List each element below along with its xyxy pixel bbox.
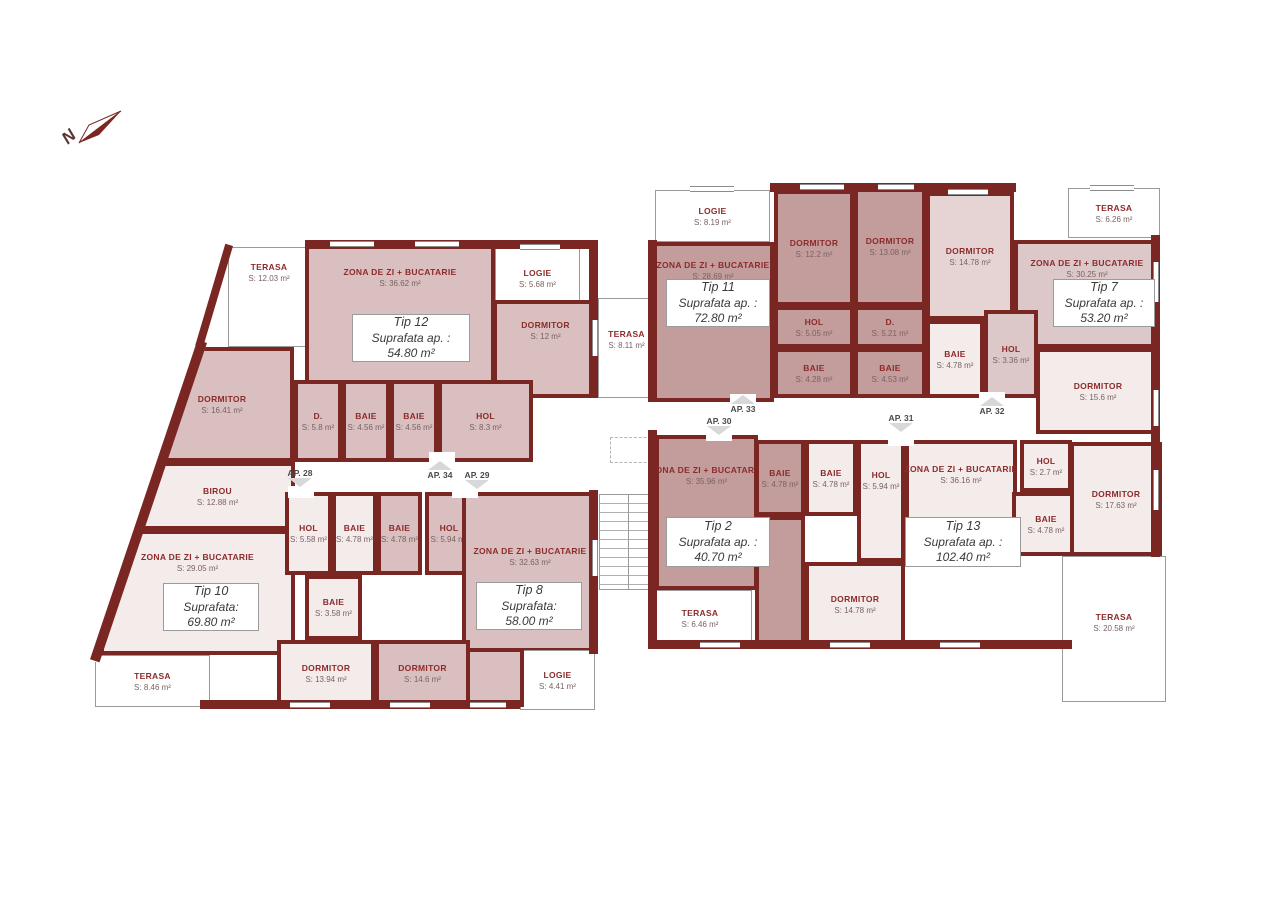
door-triangle-icon	[707, 426, 731, 435]
room-t11-dorm2: DORMITORS: 13.08 m²	[854, 186, 926, 306]
room-t13-hol2: HOLS: 2.7 m²	[1020, 440, 1072, 492]
room-name: DORMITOR	[198, 394, 247, 404]
room-t11-hol: HOLS: 5.05 m²	[774, 306, 854, 348]
ap-marker-label: AP. 32	[980, 406, 1005, 416]
room-t12-baie1: BAIES: 4.56 m²	[342, 380, 390, 462]
door-triangle-icon	[731, 395, 755, 404]
apartment-area-value: 54.80 m²	[387, 346, 434, 362]
room-name: BAIE	[820, 468, 842, 478]
apartment-type: Tip 12	[394, 314, 429, 330]
room-area: S: 14.78 m²	[834, 606, 875, 615]
room-name: ZONA DE ZI + BUCATARIE	[905, 464, 1018, 474]
room-t10-hol: HOLS: 5.58 m²	[285, 492, 332, 575]
wall-segment	[648, 430, 657, 645]
room-name: BAIE	[944, 349, 966, 359]
door-triangle-icon	[288, 478, 312, 487]
window-mark	[290, 702, 330, 708]
apartment-label-tip8: Tip 8Suprafata:58.00 m²	[476, 582, 582, 630]
room-t7-baie: BAIES: 4.78 m²	[926, 320, 984, 398]
window-mark	[830, 642, 870, 648]
room-area: S: 6.26 m²	[1096, 215, 1133, 224]
room-name: LOGIE	[524, 268, 552, 278]
room-area: S: 12 m²	[530, 332, 560, 341]
window-mark	[592, 540, 598, 576]
room-t13-terasa: TERASAS: 20.58 m²	[1062, 556, 1166, 702]
room-name: BAIE	[389, 523, 411, 533]
room-name: DORMITOR	[866, 236, 915, 246]
room-name: TERASA	[608, 329, 645, 339]
apartment-area-value: 72.80 m²	[694, 311, 741, 327]
floor-plan: N TERASAS: 12.03 m²ZONA DE ZI + BUCATARI…	[0, 0, 1280, 905]
room-t11-d: D.S: 5.21 m²	[854, 306, 926, 348]
room-name: LOGIE	[699, 206, 727, 216]
apartment-area-caption: Suprafata ap. :	[679, 535, 758, 551]
room-t8-baie: BAIES: 4.78 m²	[377, 492, 422, 575]
room-t10-baie2: BAIES: 3.58 m²	[305, 575, 362, 640]
apartment-area-caption: Suprafata:	[501, 599, 556, 615]
room-name: ZONA DE ZI + BUCATARIE	[141, 552, 254, 562]
room-area: S: 32.63 m²	[509, 558, 550, 567]
apartment-label-tip12: Tip 12Suprafata ap. :54.80 m²	[352, 314, 470, 362]
window-mark	[1153, 390, 1159, 426]
window-mark	[940, 642, 980, 648]
room-name: DORMITOR	[1092, 489, 1141, 499]
ap-marker-ap31: AP. 31	[889, 413, 914, 432]
ap-marker-label: AP. 28	[288, 468, 313, 478]
room-area: S: 36.16 m²	[940, 476, 981, 485]
room-t8-dorm: DORMITORS: 14.6 m²	[375, 640, 470, 707]
room-area: S: 5.05 m²	[796, 329, 833, 338]
apartment-area-caption: Suprafata ap. :	[924, 535, 1003, 551]
staircase-divider	[628, 495, 629, 589]
apartment-type: Tip 10	[194, 583, 229, 599]
room-t13-dorm1: DORMITORS: 14.78 m²	[805, 562, 905, 646]
ap-marker-ap29: AP. 29	[465, 470, 490, 489]
room-name: TERASA	[251, 262, 288, 272]
room-area: S: 4.78 m²	[336, 535, 373, 544]
window-mark	[1153, 470, 1159, 510]
room-t11-dorm1: DORMITORS: 12.2 m²	[774, 190, 854, 306]
room-area: S: 5.58 m²	[290, 535, 327, 544]
room-area: S: 8.3 m²	[469, 423, 501, 432]
room-t13-dorm2: DORMITORS: 17.63 m²	[1070, 442, 1162, 556]
wall-segment	[648, 240, 657, 402]
room-t7-dorm2: DORMITORS: 15.6 m²	[1036, 348, 1160, 434]
room-name: ZONA DE ZI + BUCATARIE	[344, 267, 457, 277]
window-mark	[1090, 185, 1134, 191]
room-t10-baie1: BAIES: 4.78 m²	[332, 492, 377, 575]
apartment-area-caption: Suprafata ap. :	[679, 296, 758, 312]
door-opening	[288, 486, 314, 498]
room-name: BAIE	[803, 363, 825, 373]
room-mid-terasa: TERASAS: 8.11 m²	[598, 298, 655, 398]
apartment-type: Tip 8	[515, 582, 543, 598]
apartment-area-caption: Suprafata ap. :	[372, 331, 451, 347]
apartment-area-caption: Suprafata ap. :	[1065, 296, 1144, 312]
apartment-label-tip2: Tip 2Suprafata ap. :40.70 m²	[666, 517, 770, 567]
room-t7-terasa: TERASAS: 6.26 m²	[1068, 188, 1160, 238]
room-name: DORMITOR	[302, 663, 351, 673]
room-t2-terasa: TERASAS: 6.46 m²	[648, 590, 752, 646]
room-area: S: 5.8 m²	[302, 423, 334, 432]
room-name: BAIE	[769, 468, 791, 478]
room-area: S: 4.56 m²	[396, 423, 433, 432]
ap-marker-ap33: AP. 33	[731, 395, 756, 414]
door-triangle-icon	[428, 461, 452, 470]
room-area: S: 14.78 m²	[949, 258, 990, 267]
room-area: S: 8.11 m²	[608, 341, 644, 350]
window-mark	[948, 189, 988, 195]
room-name: DORMITOR	[946, 246, 995, 256]
room-t10-dorm: DORMITORS: 13.94 m²	[277, 640, 375, 707]
room-name: DORMITOR	[790, 238, 839, 248]
room-area: S: 8.46 m²	[134, 683, 171, 692]
ap-marker-label: AP. 31	[889, 413, 914, 423]
room-name: HOL	[872, 470, 891, 480]
room-area: S: 6.46 m²	[682, 620, 719, 629]
room-name: D.	[313, 411, 322, 421]
room-area: S: 4.53 m²	[872, 375, 909, 384]
room-area: S: 8.19 m²	[694, 218, 731, 227]
apartment-area-value: 69.80 m²	[187, 615, 234, 631]
apartment-area-value: 102.40 m²	[936, 550, 990, 566]
room-area: S: 12.03 m²	[248, 274, 289, 283]
room-name: BAIE	[355, 411, 377, 421]
apartment-area-value: 53.20 m²	[1080, 311, 1127, 327]
room-area: S: 2.7 m²	[1030, 468, 1062, 477]
apartment-area-value: 58.00 m²	[505, 614, 552, 630]
room-name: HOL	[805, 317, 824, 327]
room-area: S: 4.78 m²	[937, 361, 974, 370]
room-name: BAIE	[1035, 514, 1057, 524]
ap-marker-ap34: AP. 34	[428, 461, 453, 480]
room-t12-baie2: BAIES: 4.56 m²	[390, 380, 438, 462]
room-area: S: 35.96 m²	[686, 477, 727, 486]
apartment-label-tip13: Tip 13Suprafata ap. :102.40 m²	[905, 517, 1021, 567]
room-name: HOL	[1037, 456, 1056, 466]
window-mark	[470, 702, 506, 708]
room-area: S: 36.62 m²	[379, 279, 420, 288]
room-area: S: 13.08 m²	[869, 248, 910, 257]
room-area: S: 29.05 m²	[177, 564, 218, 573]
room-name: TERASA	[682, 608, 719, 618]
room-name: LOGIE	[544, 670, 572, 680]
apartment-type: Tip 11	[701, 279, 735, 295]
room-area: S: 16.41 m²	[201, 406, 242, 415]
room-area: S: 20.58 m²	[1093, 624, 1134, 633]
room-area: S: 4.41 m²	[539, 682, 576, 691]
room-name: DORMITOR	[398, 663, 447, 673]
room-t8-logie: LOGIES: 4.41 m²	[520, 650, 595, 710]
room-t11-baie2: BAIES: 4.53 m²	[854, 348, 926, 398]
room-name: DORMITOR	[1074, 381, 1123, 391]
room-area: S: 3.58 m²	[315, 609, 352, 618]
window-mark	[592, 320, 598, 356]
ap-marker-ap30: AP. 30	[707, 416, 732, 435]
room-area: S: 15.6 m²	[1080, 393, 1117, 402]
room-name: D.	[885, 317, 894, 327]
room-area: S: 5.68 m²	[519, 280, 556, 289]
room-name: BAIE	[344, 523, 366, 533]
apartment-type: Tip 2	[704, 518, 732, 534]
room-name: BAIE	[879, 363, 901, 373]
ap-marker-label: AP. 30	[707, 416, 732, 426]
apartment-label-tip10: Tip 10Suprafata:69.80 m²	[163, 583, 259, 631]
room-name: HOL	[476, 411, 495, 421]
apartment-type: Tip 13	[946, 518, 981, 534]
room-name: BAIE	[323, 597, 345, 607]
room-name: BAIE	[403, 411, 425, 421]
window-mark	[800, 184, 844, 190]
ap-marker-label: AP. 33	[731, 404, 756, 414]
window-mark	[390, 702, 430, 708]
room-area: S: 14.6 m²	[404, 675, 441, 684]
apartment-area-caption: Suprafata:	[183, 600, 238, 616]
room-name: ZONA DE ZI + BUCATARIE	[474, 546, 587, 556]
room-area: S: 17.63 m²	[1095, 501, 1136, 510]
room-name: HOL	[440, 523, 459, 533]
apartment-area-value: 40.70 m²	[694, 550, 741, 566]
room-t13-baie1: BAIES: 4.78 m²	[805, 440, 857, 516]
room-name: ZONA DE ZI + BUCATARIE	[657, 260, 770, 270]
room-area: S: 4.78 m²	[813, 480, 850, 489]
room-area: S: 30.25 m²	[1066, 270, 1107, 279]
ap-marker-label: AP. 29	[465, 470, 490, 480]
door-opening	[888, 434, 914, 446]
room-t13-hol1: HOLS: 5.94 m²	[857, 440, 905, 562]
room-t7-dorm1: DORMITORS: 14.78 m²	[926, 192, 1014, 320]
room-name: DORMITOR	[831, 594, 880, 604]
window-mark	[520, 244, 560, 250]
ap-marker-ap32: AP. 32	[980, 397, 1005, 416]
room-filler	[466, 648, 524, 707]
room-name: ZONA DE ZI + BUCATARIE	[1031, 258, 1144, 268]
window-mark	[700, 642, 740, 648]
door-triangle-icon	[980, 397, 1004, 406]
room-name: TERASA	[134, 671, 171, 681]
apartment-type: Tip 7	[1090, 279, 1118, 295]
room-area: S: 13.94 m²	[305, 675, 346, 684]
room-t12-terasa: TERASAS: 12.03 m²	[228, 247, 310, 347]
window-mark	[415, 241, 459, 247]
room-area: S: 4.78 m²	[381, 535, 418, 544]
room-area: S: 12.2 m²	[796, 250, 833, 259]
window-mark	[878, 184, 914, 190]
door-triangle-icon	[889, 423, 913, 432]
room-area: S: 12.88 m²	[197, 498, 238, 507]
room-t11-baie1: BAIES: 4.28 m²	[774, 348, 854, 398]
room-t10-terasa: TERASAS: 8.46 m²	[95, 655, 210, 707]
ap-marker-ap28: AP. 28	[288, 468, 313, 487]
room-name: TERASA	[1096, 203, 1133, 213]
room-area: S: 4.28 m²	[796, 375, 833, 384]
room-t11-logie: LOGIES: 8.19 m²	[655, 190, 770, 242]
room-area: S: 4.78 m²	[762, 480, 799, 489]
room-name: ZONA DE ZI + BUCATARIE	[650, 465, 763, 475]
room-t12-d: D.S: 5.8 m²	[294, 380, 342, 462]
room-t2-baie: BAIES: 4.78 m²	[755, 440, 805, 516]
room-name: TERASA	[1096, 612, 1133, 622]
north-arrow-icon: N	[55, 103, 135, 165]
room-t12-hol: HOLS: 8.3 m²	[438, 380, 533, 462]
window-mark	[690, 186, 734, 192]
room-name: HOL	[299, 523, 318, 533]
room-area: S: 4.56 m²	[348, 423, 385, 432]
window-mark	[330, 241, 374, 247]
room-name: HOL	[1002, 344, 1021, 354]
room-t7-hol: HOLS: 3.36 m²	[984, 310, 1038, 398]
room-name: DORMITOR	[521, 320, 570, 330]
room-name: BIROU	[203, 486, 232, 496]
ap-marker-label: AP. 34	[428, 470, 453, 480]
room-area: S: 5.94 m²	[863, 482, 900, 491]
room-area: S: 5.21 m²	[872, 329, 909, 338]
room-area: S: 3.36 m²	[993, 356, 1030, 365]
door-triangle-icon	[465, 480, 489, 489]
apartment-label-tip11: Tip 11Suprafata ap. :72.80 m²	[666, 279, 770, 327]
room-area: S: 4.78 m²	[1028, 526, 1065, 535]
apartment-label-tip7: Tip 7Suprafata ap. :53.20 m²	[1053, 279, 1155, 327]
